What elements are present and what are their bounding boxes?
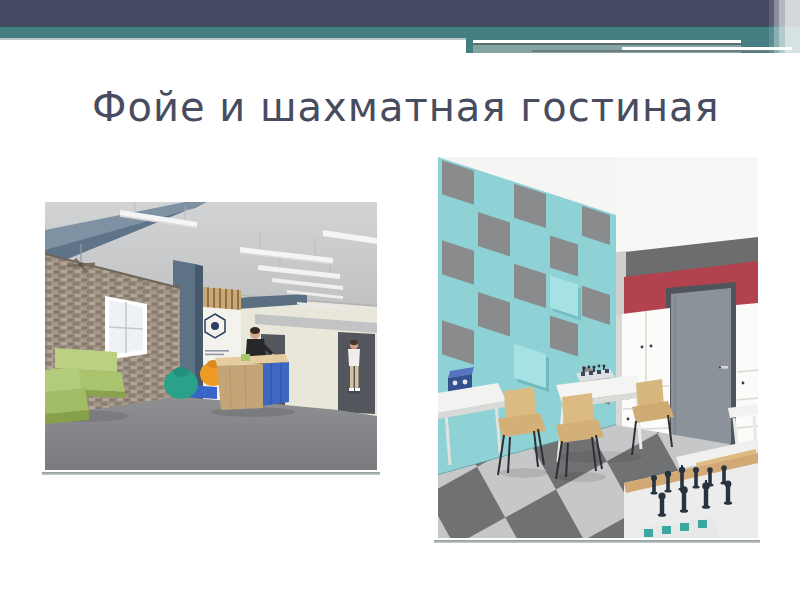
door [666, 282, 736, 454]
header-top-bar [0, 0, 800, 26]
foyer-render [45, 202, 377, 470]
foyer-underline [42, 472, 380, 475]
chess-lounge-svg [438, 157, 758, 538]
header-dark-line-1 [475, 43, 741, 45]
logo-caption-line [205, 350, 229, 352]
slide-title: Фойе и шахматная гостиная [92, 84, 720, 130]
window [105, 296, 147, 360]
header-corner-stripe-4 [785, 0, 800, 53]
desk-wood-front [217, 364, 263, 410]
presentation-slide: Фойе и шахматная гостиная [0, 0, 800, 600]
header-teal-band [0, 26, 800, 38]
chess-underline [434, 540, 760, 543]
header-decoration [0, 0, 800, 56]
header-gray-underline [0, 38, 466, 40]
desk-blue-panels [261, 362, 289, 406]
door-handle [720, 366, 728, 369]
foyer-render-svg [45, 202, 377, 470]
white-wall-upper [616, 157, 758, 253]
desk-chair [241, 354, 250, 361]
logo-caption-line [205, 354, 224, 356]
header-dark-line-2 [532, 50, 772, 52]
chess-lounge-render [438, 157, 758, 538]
